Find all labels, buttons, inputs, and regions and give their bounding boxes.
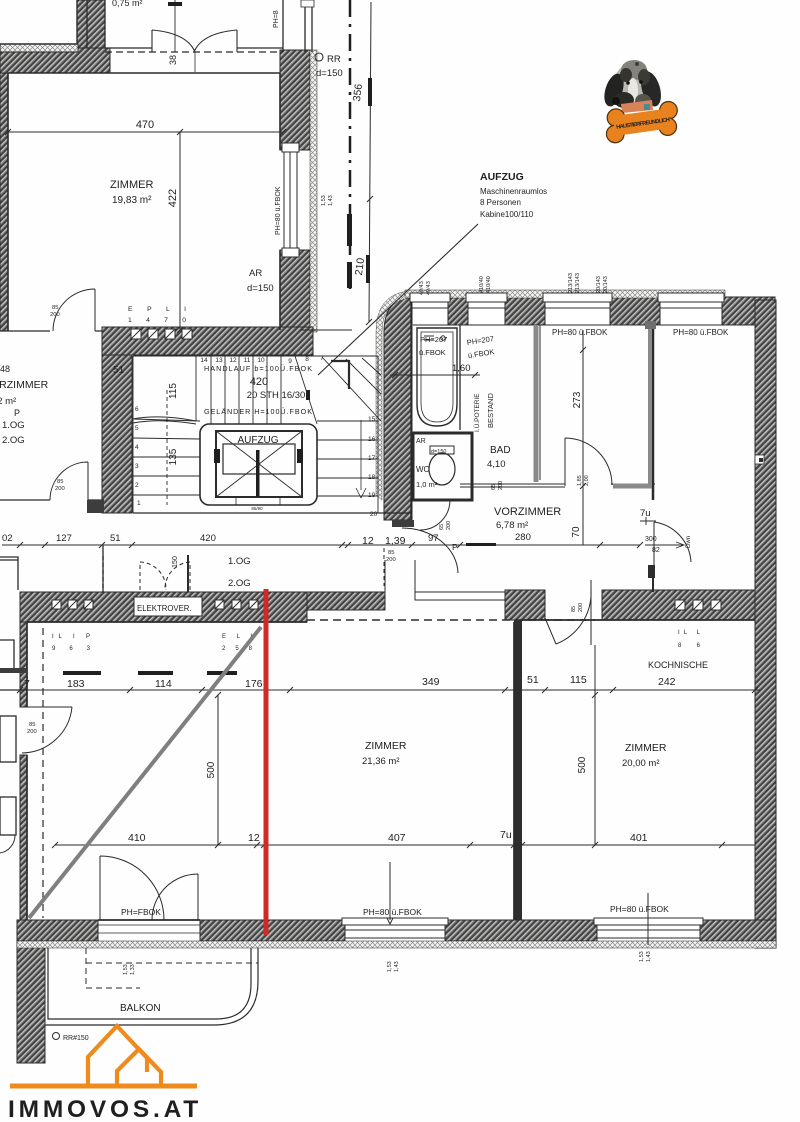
svg-text:Dwn: Dwn	[686, 536, 692, 548]
svg-text:Kabine100/110: Kabine100/110	[480, 210, 534, 219]
svg-text:420: 420	[200, 533, 216, 544]
svg-text:19: 19	[368, 492, 376, 499]
svg-text:356: 356	[351, 83, 365, 102]
svg-text:12: 12	[362, 535, 374, 547]
svg-text:20: 20	[370, 511, 378, 518]
svg-text:GELÄNDER H=100Ü.FBOK: GELÄNDER H=100Ü.FBOK	[204, 407, 312, 416]
svg-text:2.OG: 2.OG	[2, 435, 25, 446]
svg-text:1,33: 1,33	[130, 964, 136, 975]
svg-text:17: 17	[368, 455, 376, 462]
svg-text:PH=80 ü.FBOK: PH=80 ü.FBOK	[275, 186, 282, 235]
svg-text:8: 8	[305, 356, 309, 363]
svg-text:13: 13	[215, 357, 223, 364]
svg-text:1.OG: 1.OG	[228, 556, 251, 567]
svg-text:PH=80 ü.FBOK: PH=80 ü.FBOK	[552, 328, 608, 337]
svg-text:1,43: 1,43	[328, 195, 334, 206]
svg-text:1,53: 1,53	[123, 964, 129, 975]
svg-text:1,0 m²: 1,0 m²	[416, 480, 438, 489]
svg-text:20/143: 20/143	[596, 276, 602, 293]
svg-text:BESTAND: BESTAND	[486, 393, 495, 428]
svg-text:ü.FBOK: ü.FBOK	[419, 348, 446, 357]
svg-text:280: 280	[515, 532, 531, 543]
svg-text:7u: 7u	[640, 508, 651, 519]
svg-text:4,10: 4,10	[487, 459, 506, 470]
svg-text:PH=8: PH=8	[273, 10, 280, 28]
svg-text:200: 200	[446, 521, 452, 530]
svg-text:21,36 m²: 21,36 m²	[362, 756, 400, 767]
svg-text:1: 1	[137, 500, 141, 507]
svg-text:410/40: 410/40	[486, 276, 492, 293]
svg-text:183: 183	[67, 678, 85, 690]
svg-text:16: 16	[368, 436, 376, 443]
svg-text:19,83 m²: 19,83 m²	[112, 195, 152, 206]
svg-text:85: 85	[571, 606, 577, 612]
svg-text:8,02 m²: 8,02 m²	[0, 396, 16, 407]
svg-text:65: 65	[439, 524, 445, 530]
svg-text:7: 7	[320, 355, 324, 362]
svg-text:85: 85	[29, 722, 35, 728]
svg-text:500: 500	[577, 756, 588, 773]
svg-text:273: 273	[572, 391, 583, 408]
svg-text:VORZIMMER: VORZIMMER	[494, 506, 561, 518]
svg-text:KOCHNISCHE: KOCHNISCHE	[648, 660, 708, 670]
svg-text:AUFZUG: AUFZUG	[237, 435, 278, 446]
svg-text:6,78 m²: 6,78 m²	[496, 520, 528, 531]
svg-text:97: 97	[428, 533, 439, 544]
svg-text:7u: 7u	[500, 829, 512, 841]
svg-text:IMMOVOS.AT: IMMOVOS.AT	[8, 1096, 202, 1122]
svg-text:200: 200	[386, 557, 396, 563]
svg-text:I.Ü.POTERIE: I.Ü.POTERIE	[473, 393, 481, 432]
svg-text:RR#150: RR#150	[63, 1035, 89, 1042]
svg-text:127: 127	[56, 533, 72, 544]
svg-text:02: 02	[2, 533, 13, 544]
svg-text:85: 85	[52, 305, 58, 311]
svg-text:7: 7	[24, 678, 30, 690]
svg-text:1,39: 1,39	[385, 535, 406, 547]
svg-text:15: 15	[368, 416, 376, 423]
svg-text:ZIMMER: ZIMMER	[625, 742, 667, 754]
svg-text:213/143: 213/143	[568, 273, 574, 293]
svg-text:422: 422	[167, 189, 179, 207]
svg-text:85/90: 85/90	[251, 506, 263, 511]
svg-text:1,53: 1,53	[321, 195, 327, 206]
svg-text:114: 114	[155, 678, 172, 690]
svg-text:200: 200	[578, 603, 584, 612]
svg-text:Maschinenraumlos: Maschinenraumlos	[480, 187, 547, 196]
svg-text:VORZIMMER: VORZIMMER	[0, 379, 49, 391]
svg-text:410/40: 410/40	[479, 276, 485, 293]
svg-text:4: 4	[135, 444, 139, 451]
svg-text:470: 470	[136, 119, 154, 131]
svg-text:d=150: d=150	[316, 68, 343, 79]
svg-text:1,43: 1,43	[646, 951, 652, 962]
svg-text:PH=80 ü.FBOK: PH=80 ü.FBOK	[610, 904, 669, 914]
svg-text:407: 407	[388, 832, 406, 844]
svg-text:12: 12	[229, 357, 237, 364]
svg-text:48: 48	[0, 364, 10, 374]
svg-text:200: 200	[27, 729, 37, 735]
svg-text:d=150: d=150	[431, 449, 446, 455]
svg-text:RR: RR	[327, 54, 341, 65]
svg-text:12: 12	[248, 832, 260, 844]
svg-text:420: 420	[250, 376, 268, 388]
svg-text:1,85: 1,85	[577, 475, 583, 486]
svg-text:349: 349	[422, 676, 440, 688]
svg-text:200: 200	[50, 312, 60, 318]
svg-text:38: 38	[168, 55, 178, 65]
svg-text:51: 51	[527, 674, 539, 686]
svg-text:10: 10	[257, 357, 265, 364]
svg-text:115: 115	[168, 383, 179, 399]
svg-text:20 STH 16/30: 20 STH 16/30	[247, 390, 306, 401]
svg-text:200: 200	[498, 481, 504, 490]
svg-text:0,75 m²: 0,75 m²	[112, 0, 143, 8]
svg-text:P: P	[452, 542, 458, 552]
svg-text:WC: WC	[416, 465, 430, 474]
svg-text:8 Personen: 8 Personen	[480, 198, 521, 207]
svg-text:49/43: 49/43	[426, 281, 432, 295]
svg-text:1,53: 1,53	[639, 951, 645, 962]
svg-text:AR: AR	[249, 268, 262, 279]
svg-text:HANDLAUF b=100Ü.FBOK: HANDLAUF b=100Ü.FBOK	[204, 364, 312, 373]
svg-text:PH=80 ü.FBOK: PH=80 ü.FBOK	[673, 328, 729, 337]
svg-text:1,43: 1,43	[394, 961, 400, 972]
svg-text:20,00 m²: 20,00 m²	[622, 758, 660, 769]
svg-text:20/143: 20/143	[603, 276, 609, 293]
svg-text:51: 51	[113, 365, 125, 376]
svg-text:BALKON: BALKON	[120, 1003, 161, 1014]
svg-text:BAD: BAD	[490, 445, 511, 456]
svg-text:176: 176	[245, 678, 263, 690]
svg-text:200: 200	[55, 486, 65, 492]
svg-text:300: 300	[645, 536, 657, 543]
svg-text:AR: AR	[416, 438, 426, 445]
svg-text:65: 65	[491, 484, 497, 490]
svg-text:242: 242	[658, 676, 676, 688]
svg-text:150: 150	[172, 556, 179, 568]
svg-text:2: 2	[135, 482, 139, 489]
svg-text:51: 51	[110, 533, 121, 544]
svg-text:PH=80 ü.FBOK: PH=80 ü.FBOK	[363, 907, 422, 917]
svg-text:135: 135	[168, 448, 179, 465]
svg-text:5: 5	[135, 425, 139, 432]
svg-text:PH=207: PH=207	[420, 335, 447, 344]
svg-text:P: P	[14, 408, 20, 418]
svg-text:ELEKTROVER.: ELEKTROVER.	[137, 604, 192, 613]
svg-text:210: 210	[353, 257, 367, 276]
svg-text:11: 11	[244, 357, 251, 364]
svg-text:1.OG: 1.OG	[2, 420, 25, 431]
svg-text:ZIMMER: ZIMMER	[365, 740, 407, 752]
svg-text:PH=FBOK: PH=FBOK	[121, 907, 161, 917]
svg-text:2,00: 2,00	[584, 475, 590, 486]
svg-text:115: 115	[570, 674, 587, 686]
svg-text:70: 70	[571, 526, 582, 538]
svg-text:213/143: 213/143	[575, 273, 581, 293]
svg-text:d=150: d=150	[247, 283, 274, 294]
svg-text:3: 3	[135, 463, 139, 470]
svg-text:1,53: 1,53	[387, 961, 393, 972]
svg-text:410: 410	[128, 832, 146, 844]
svg-text:ZIMMER: ZIMMER	[110, 179, 153, 191]
svg-text:49/43: 49/43	[419, 281, 425, 295]
svg-text:500: 500	[206, 761, 217, 778]
svg-text:AUFZUG: AUFZUG	[480, 171, 524, 183]
svg-text:85: 85	[388, 550, 394, 556]
svg-text:14: 14	[200, 357, 208, 364]
svg-text:82: 82	[652, 547, 660, 554]
svg-text:6: 6	[135, 406, 139, 413]
svg-text:2.OG: 2.OG	[228, 578, 251, 589]
svg-text:85: 85	[57, 479, 63, 485]
svg-text:401: 401	[630, 832, 648, 844]
svg-text:18: 18	[368, 474, 376, 481]
svg-text:1,60: 1,60	[452, 363, 471, 374]
